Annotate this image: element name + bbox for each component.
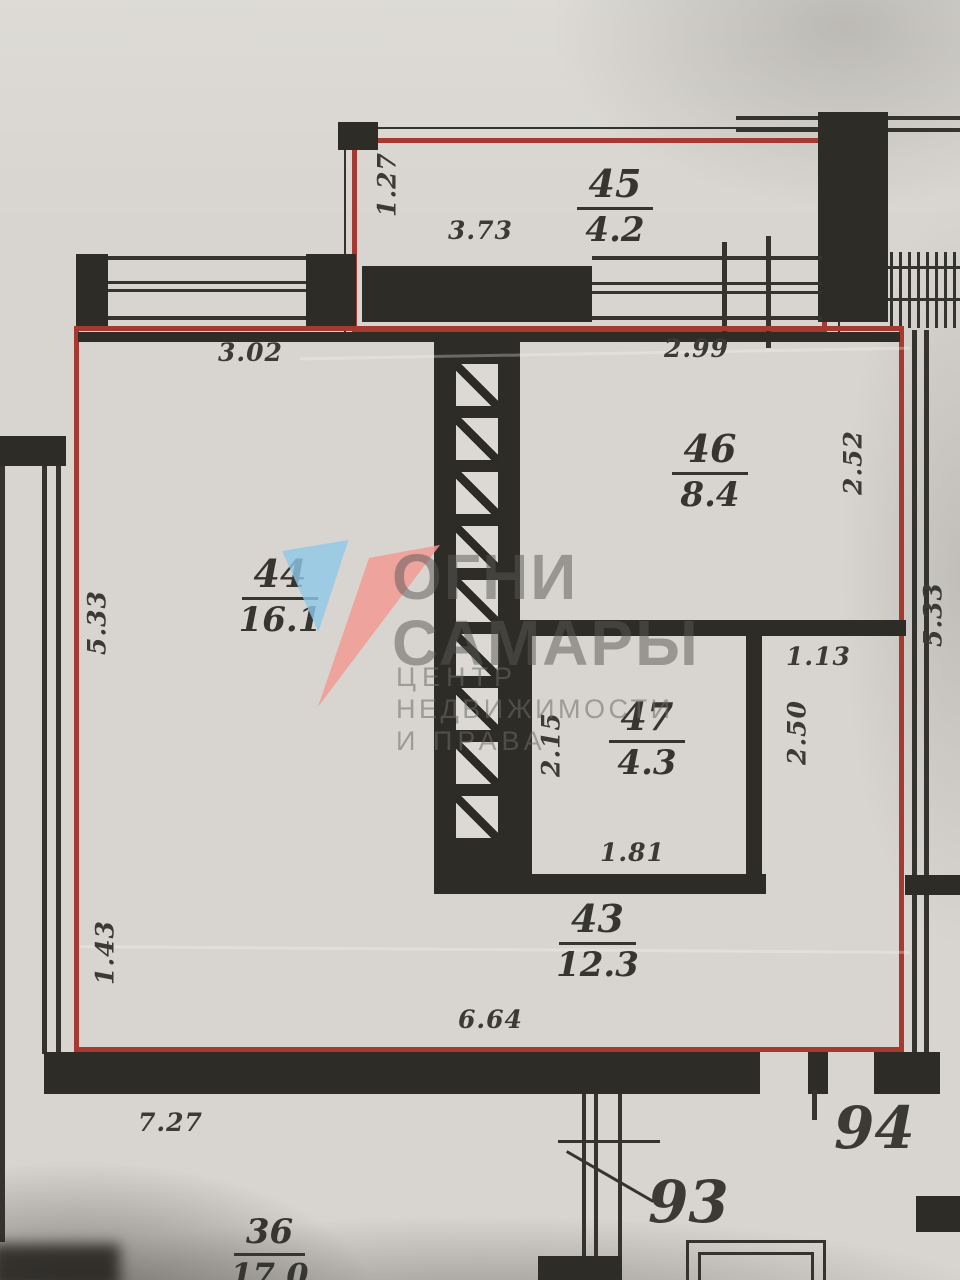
room-number: 36 xyxy=(234,1215,305,1256)
dim-room43-left: 1.43 xyxy=(91,918,120,988)
wall-segment xyxy=(916,1196,960,1232)
room-label-43: 43 12.3 xyxy=(540,900,655,986)
wall-segment xyxy=(808,1052,828,1094)
wall-segment xyxy=(306,254,356,326)
leader-line-93 xyxy=(566,1150,654,1203)
thin-line xyxy=(812,1090,817,1120)
thin-line xyxy=(926,252,929,328)
thin-line xyxy=(917,252,920,328)
watermark-subtitle-2: НЕДВИЖИМОСТИ xyxy=(396,694,674,725)
wall-segment xyxy=(44,1052,760,1094)
wall-segment xyxy=(874,1052,940,1094)
thin-line xyxy=(108,256,308,260)
thin-line xyxy=(558,1140,660,1143)
thin-line xyxy=(42,466,47,1054)
thin-line xyxy=(908,252,911,328)
wall-segment xyxy=(362,266,592,322)
dim-balcony-width: 3.73 xyxy=(448,216,513,245)
thin-line xyxy=(899,252,902,328)
wall-segment xyxy=(0,436,66,466)
wall-segment xyxy=(818,112,888,262)
dim-corridor-top: 1.13 xyxy=(786,642,851,671)
shaft-hatch-square xyxy=(456,418,498,460)
watermark-subtitle-1: ЦЕНТР xyxy=(396,662,518,693)
wall-segment xyxy=(746,632,762,888)
wall-segment xyxy=(338,122,378,150)
thin-line xyxy=(888,298,960,301)
thin-line xyxy=(594,1094,598,1262)
thin-line xyxy=(935,252,938,328)
thin-line xyxy=(592,291,822,294)
dim-room46-right: 2.52 xyxy=(839,428,868,498)
thin-line xyxy=(924,330,929,1054)
room-label-36: 36 17.0 xyxy=(222,1215,317,1280)
room-area: 4.2 xyxy=(560,210,670,251)
dim-outer-right: 5.33 xyxy=(919,580,948,650)
unit-label-93: 93 xyxy=(648,1168,729,1236)
watermark-title-1: ОГНИ xyxy=(392,540,578,614)
dim-room44-left: 5.33 xyxy=(83,588,112,658)
dim-balcony-depth: 1.27 xyxy=(373,150,402,220)
thin-line xyxy=(944,252,947,328)
thin-line xyxy=(0,1040,5,1240)
thin-line xyxy=(592,256,822,260)
room-label-45: 45 4.2 xyxy=(560,165,670,251)
wall-segment xyxy=(905,875,960,895)
dim-outer-bottom: 7.27 xyxy=(138,1108,203,1137)
unit-label-94: 94 xyxy=(834,1094,915,1162)
wall-segment xyxy=(76,254,108,326)
thin-line xyxy=(108,316,308,320)
thin-line xyxy=(108,281,308,284)
room-area: 17.0 xyxy=(222,1256,317,1280)
thin-line xyxy=(618,1094,622,1262)
photo-shadow xyxy=(0,1244,120,1280)
thin-line xyxy=(56,466,61,1054)
thin-line xyxy=(890,252,893,328)
thin-line xyxy=(912,330,917,1054)
room-area: 8.4 xyxy=(655,475,765,516)
dim-corridor-right: 2.50 xyxy=(783,698,812,768)
thin-line xyxy=(592,316,822,320)
room-number: 45 xyxy=(577,165,654,210)
thin-line xyxy=(108,289,308,292)
room-area: 12.3 xyxy=(540,945,655,986)
floor-plan-photo: 45 4.2 44 16.1 46 8.4 47 4.3 43 12.3 36 … xyxy=(0,0,960,1280)
dim-room44-top: 3.02 xyxy=(218,338,283,367)
thin-line xyxy=(582,1094,586,1262)
wall-segment xyxy=(538,1256,622,1280)
outline-rect xyxy=(698,1252,814,1280)
room-area: 4.3 xyxy=(592,743,702,784)
shaft-hatch-square xyxy=(456,796,498,838)
shaft-hatch-square xyxy=(456,364,498,406)
wall-segment xyxy=(434,874,766,894)
room-number: 43 xyxy=(559,900,636,945)
dim-room46-top: 2.99 xyxy=(664,334,729,363)
thin-line xyxy=(888,266,960,269)
wall-segment xyxy=(818,250,888,322)
room-number: 46 xyxy=(672,430,749,475)
dim-room43-bottom: 6.64 xyxy=(458,1005,523,1034)
thin-line xyxy=(592,282,822,285)
shaft-hatch-square xyxy=(456,472,498,514)
dim-room47-bottom: 1.81 xyxy=(600,838,665,867)
thin-line xyxy=(953,252,956,328)
watermark-subtitle-3: И ПРАВА xyxy=(396,726,547,757)
room-label-46: 46 8.4 xyxy=(655,430,765,516)
